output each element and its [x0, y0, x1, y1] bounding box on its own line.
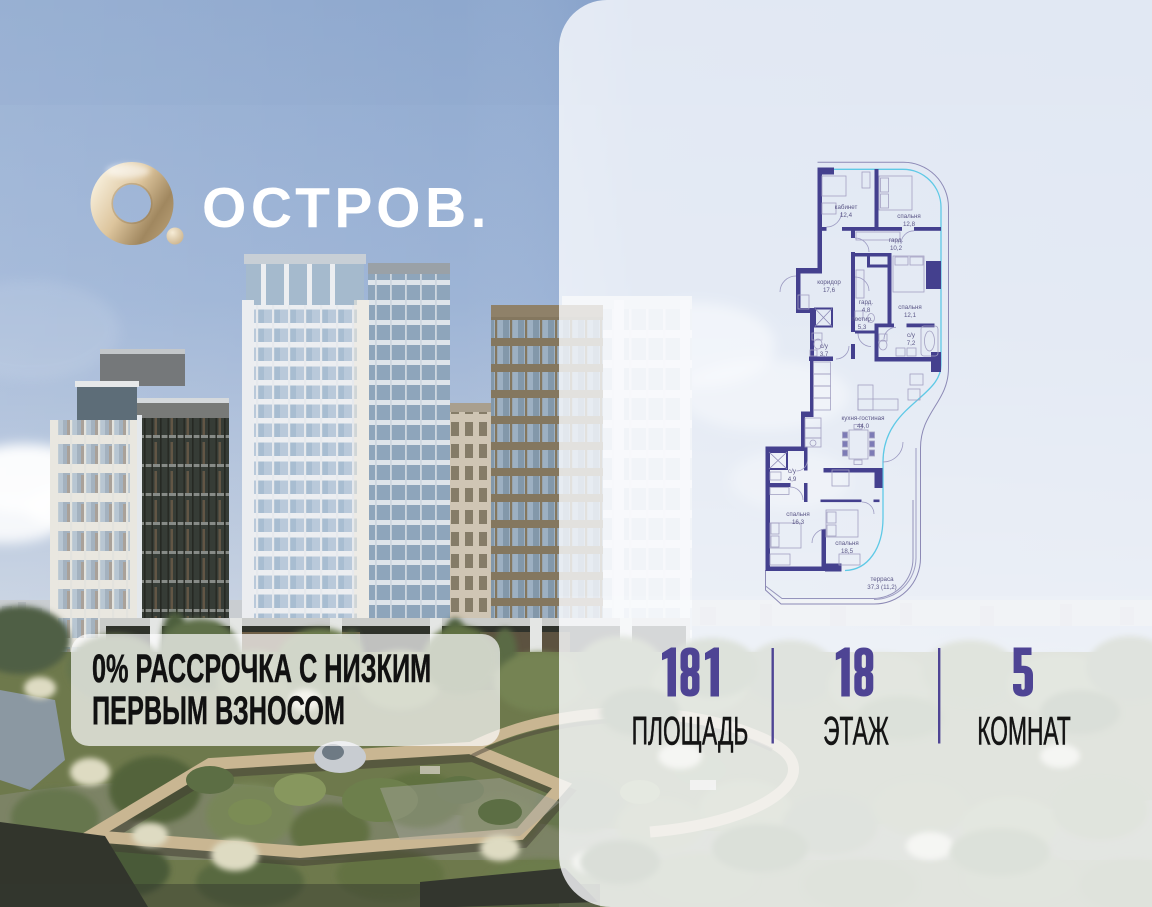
- svg-text:44,0: 44,0: [857, 423, 870, 430]
- svg-text:кухня-гостиная: кухня-гостиная: [842, 415, 885, 422]
- svg-text:17,6: 17,6: [823, 287, 836, 294]
- svg-text:спальня: спальня: [835, 540, 859, 547]
- svg-text:3,7: 3,7: [820, 351, 829, 358]
- svg-text:ПЛОЩАДЬ: ПЛОЩАДЬ: [632, 709, 749, 753]
- svg-text:спальня: спальня: [786, 511, 810, 518]
- svg-text:с/у: с/у: [788, 468, 797, 475]
- svg-text:гард.: гард.: [859, 299, 873, 306]
- svg-text:12,8: 12,8: [903, 221, 916, 228]
- svg-text:с/у: с/у: [820, 343, 829, 350]
- svg-text:4,8: 4,8: [862, 307, 871, 314]
- svg-text:постир.: постир.: [851, 316, 873, 323]
- svg-text:коридор: коридор: [817, 279, 841, 286]
- svg-text:18,5: 18,5: [841, 548, 854, 555]
- svg-text:5,3: 5,3: [858, 324, 867, 331]
- svg-text:гард.: гард.: [889, 237, 903, 244]
- svg-text:спальня: спальня: [897, 213, 921, 220]
- svg-text:терраса: терраса: [870, 576, 894, 583]
- svg-text:10,2: 10,2: [890, 245, 903, 252]
- svg-text:12,1: 12,1: [904, 312, 917, 319]
- svg-text:16,3: 16,3: [792, 519, 805, 526]
- svg-text:37,3 (11,2): 37,3 (11,2): [867, 584, 896, 591]
- svg-text:7,2: 7,2: [907, 340, 916, 347]
- svg-text:кабинет: кабинет: [835, 204, 858, 211]
- svg-text:12,4: 12,4: [840, 212, 853, 219]
- svg-text:спальня: спальня: [898, 304, 922, 311]
- svg-text:с/у: с/у: [907, 332, 916, 339]
- svg-text:4,9: 4,9: [788, 476, 797, 483]
- svg-text:ЭТАЖ: ЭТАЖ: [823, 709, 889, 753]
- svg-text:КОМНАТ: КОМНАТ: [977, 709, 1071, 753]
